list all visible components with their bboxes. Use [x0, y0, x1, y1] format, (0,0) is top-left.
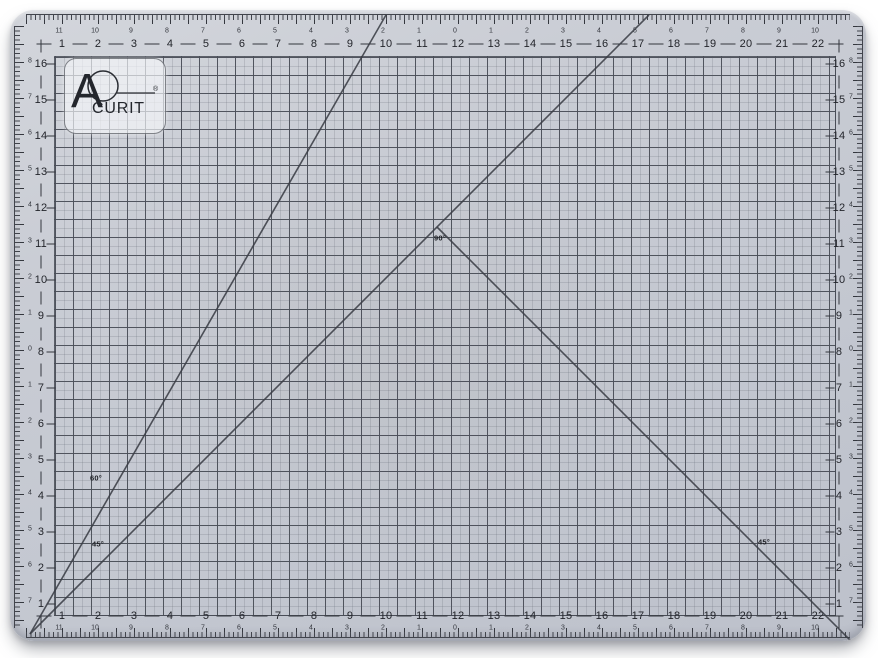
angle-label-60: 60° — [90, 474, 102, 483]
angle-label-45-left: 45° — [92, 540, 104, 549]
cutting-mat: 1234567891011121314151617181920212211109… — [10, 10, 866, 641]
registered-mark-icon: ® — [153, 86, 158, 93]
line-45deg-right — [437, 227, 852, 641]
brand-plate: A CURIT ® — [64, 58, 166, 134]
product-photo: 1234567891011121314151617181920212211109… — [0, 0, 878, 658]
angle-label-45-right: 45° — [758, 538, 770, 547]
brand-name-rest: CURIT — [92, 100, 145, 118]
angle-label-90: 90° — [434, 234, 446, 243]
